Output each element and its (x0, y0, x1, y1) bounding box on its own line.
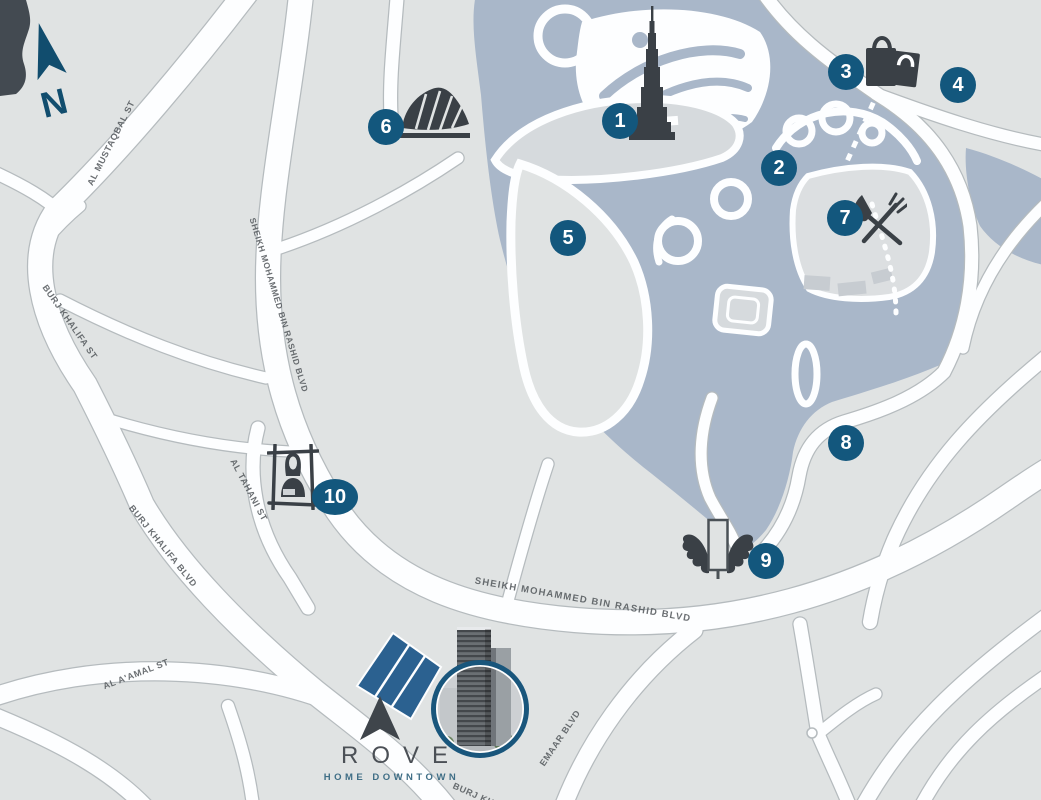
marker-number: 9 (760, 550, 771, 573)
logo-name: ROVE (308, 742, 481, 770)
marker-number: 8 (840, 432, 851, 455)
map-marker-1: 1 (602, 103, 638, 139)
marker-number: 10 (324, 486, 346, 509)
map-marker-9: 9 (748, 543, 784, 579)
map-marker-7: 7 (827, 200, 863, 236)
road (0, 712, 152, 800)
map-marker-5: 5 (550, 220, 586, 256)
wings-icon (680, 518, 756, 580)
map-marker-4: 4 (940, 67, 976, 103)
map-marker-8: 8 (828, 425, 864, 461)
map-marker-10: 10 (312, 479, 358, 515)
location-map: N (0, 0, 1041, 800)
shopping-bags-icon (864, 26, 922, 88)
map-marker-6: 6 (368, 109, 404, 145)
road (918, 670, 1041, 800)
marker-number: 3 (840, 61, 851, 84)
map-marker-3: 3 (828, 54, 864, 90)
compass-label: N (36, 80, 71, 124)
road (0, 168, 62, 214)
compass-north-icon: N (18, 20, 78, 124)
opera-house-icon (398, 84, 474, 140)
marker-number: 6 (380, 116, 391, 139)
road (280, 158, 458, 248)
junction-dot (807, 728, 817, 738)
building-photo (430, 627, 530, 756)
logo-subtitle: HOME DOWNTOWN (308, 772, 472, 783)
road (60, 300, 266, 378)
rove-arrow-icon (358, 696, 402, 742)
marker-number: 7 (839, 207, 850, 230)
map-marker-2: 2 (761, 150, 797, 186)
marker-number: 4 (952, 74, 963, 97)
marker-number: 2 (773, 157, 784, 180)
marker-number: 1 (614, 110, 625, 133)
road (391, 0, 398, 116)
marker-number: 5 (562, 227, 573, 250)
road (818, 694, 876, 734)
framed-painting-icon (267, 444, 319, 510)
souk-block (714, 285, 772, 334)
